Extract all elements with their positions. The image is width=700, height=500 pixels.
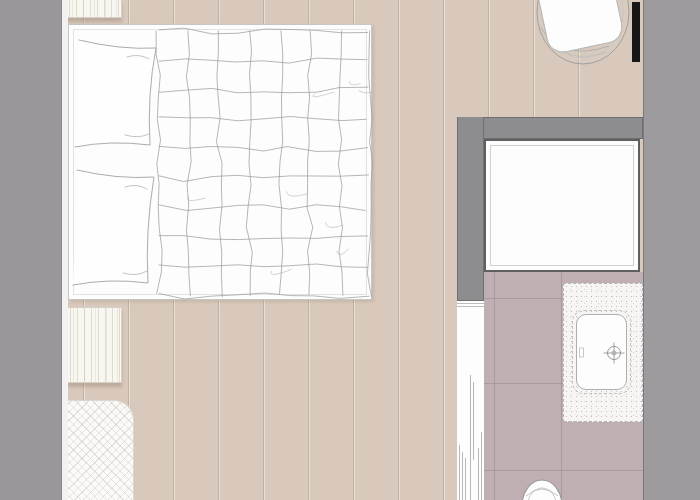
bed [68, 24, 372, 300]
door-leaf-line [481, 432, 482, 500]
door-leaf-line [473, 382, 474, 460]
vanity-sink [576, 314, 627, 390]
door-leaf-line [478, 448, 479, 500]
bedside-rug [64, 400, 134, 500]
headboard-shelf [66, 0, 122, 18]
door-frame-line [457, 306, 484, 307]
bathroom-wall-top [457, 117, 643, 139]
tile-grout-line [494, 272, 495, 500]
tile-grout-line [561, 272, 562, 500]
wall-right [643, 0, 700, 500]
armchair [533, 0, 638, 70]
shower-tray-edge [490, 145, 634, 266]
door-frame-line [457, 303, 484, 304]
sink-overflow-mark [580, 348, 584, 357]
baseboard-strip [62, 0, 68, 500]
tv-panel [632, 2, 640, 62]
tile-grout-line [484, 470, 643, 471]
toilet [516, 478, 570, 500]
bed-sketch-layer [69, 25, 373, 301]
bathroom-wall-left [457, 117, 484, 301]
sliding-door [457, 301, 484, 500]
nightstand [67, 307, 122, 383]
floor-plan [0, 0, 700, 500]
door-leaf-line [470, 375, 471, 500]
door-leaf-line [462, 452, 463, 500]
door-leaf-line [465, 458, 466, 500]
faucet-icon [604, 343, 625, 364]
wall-left [0, 0, 62, 500]
shower [484, 139, 640, 272]
door-leaf-line [459, 445, 460, 500]
